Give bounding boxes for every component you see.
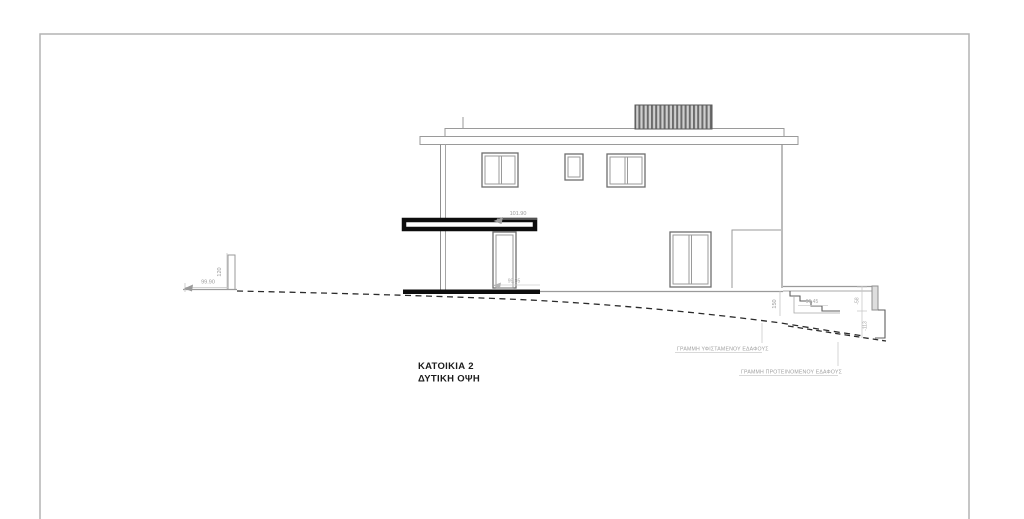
dim-canopy-level: 101.90 xyxy=(510,211,527,217)
existing-ground-dashed-line xyxy=(237,291,864,336)
dim-terrace-height: 150 xyxy=(772,299,778,308)
roof-upper-slab xyxy=(445,129,784,138)
dim-stair-level: 96.45 xyxy=(806,299,819,305)
dim-right-lower-level: -113 xyxy=(863,321,869,331)
roof-pergola-hatched xyxy=(635,105,712,129)
entrance-canopy-slab xyxy=(404,220,535,229)
dim-left-wall-height: 120 xyxy=(217,267,223,276)
terrace-slab-black xyxy=(403,290,540,295)
window-ground-right xyxy=(670,232,711,287)
window-upper-small xyxy=(565,154,583,180)
drawing-title-line1: ΚΑΤΟΙΚΙΑ 2 xyxy=(418,361,474,372)
dim-right-upper-level: -58 xyxy=(855,297,861,304)
proposed-ground-dashed-line xyxy=(788,326,886,341)
label-proposed-ground: ΓΡΑΜΜΗ ΠΡΟΤΕΙΝΟΜΕΝΟΥ ΕΔΑΦΟΥΣ xyxy=(741,370,842,376)
right-retaining-wall xyxy=(875,310,885,338)
page-border xyxy=(40,34,969,519)
elevation-drawing: 120 99.90 101.90 99.95 150 96.45 -58 -11… xyxy=(0,0,1024,519)
terrace-parapet-section xyxy=(872,286,878,310)
window-upper-right xyxy=(607,154,645,187)
right-recess-outline xyxy=(732,230,781,288)
dim-left-ground-level: 99.90 xyxy=(201,280,215,286)
left-boundary-wall-section xyxy=(228,255,235,290)
dim-arrow-door-level xyxy=(493,283,501,289)
drawing-title-line2: ΔΥΤΙΚΗ ΟΨΗ xyxy=(418,374,480,385)
dim-door-level: 99.95 xyxy=(508,279,521,285)
roof-lower-slab xyxy=(420,137,798,145)
drawing-sheet: 120 99.90 101.90 99.95 150 96.45 -58 -11… xyxy=(0,0,1024,519)
window-upper-left xyxy=(482,153,518,187)
label-existing-ground: ΓΡΑΜΜΗ ΥΦΙΣΤΑΜΕΝΟΥ ΕΔΑΦΟΥΣ xyxy=(677,347,769,353)
